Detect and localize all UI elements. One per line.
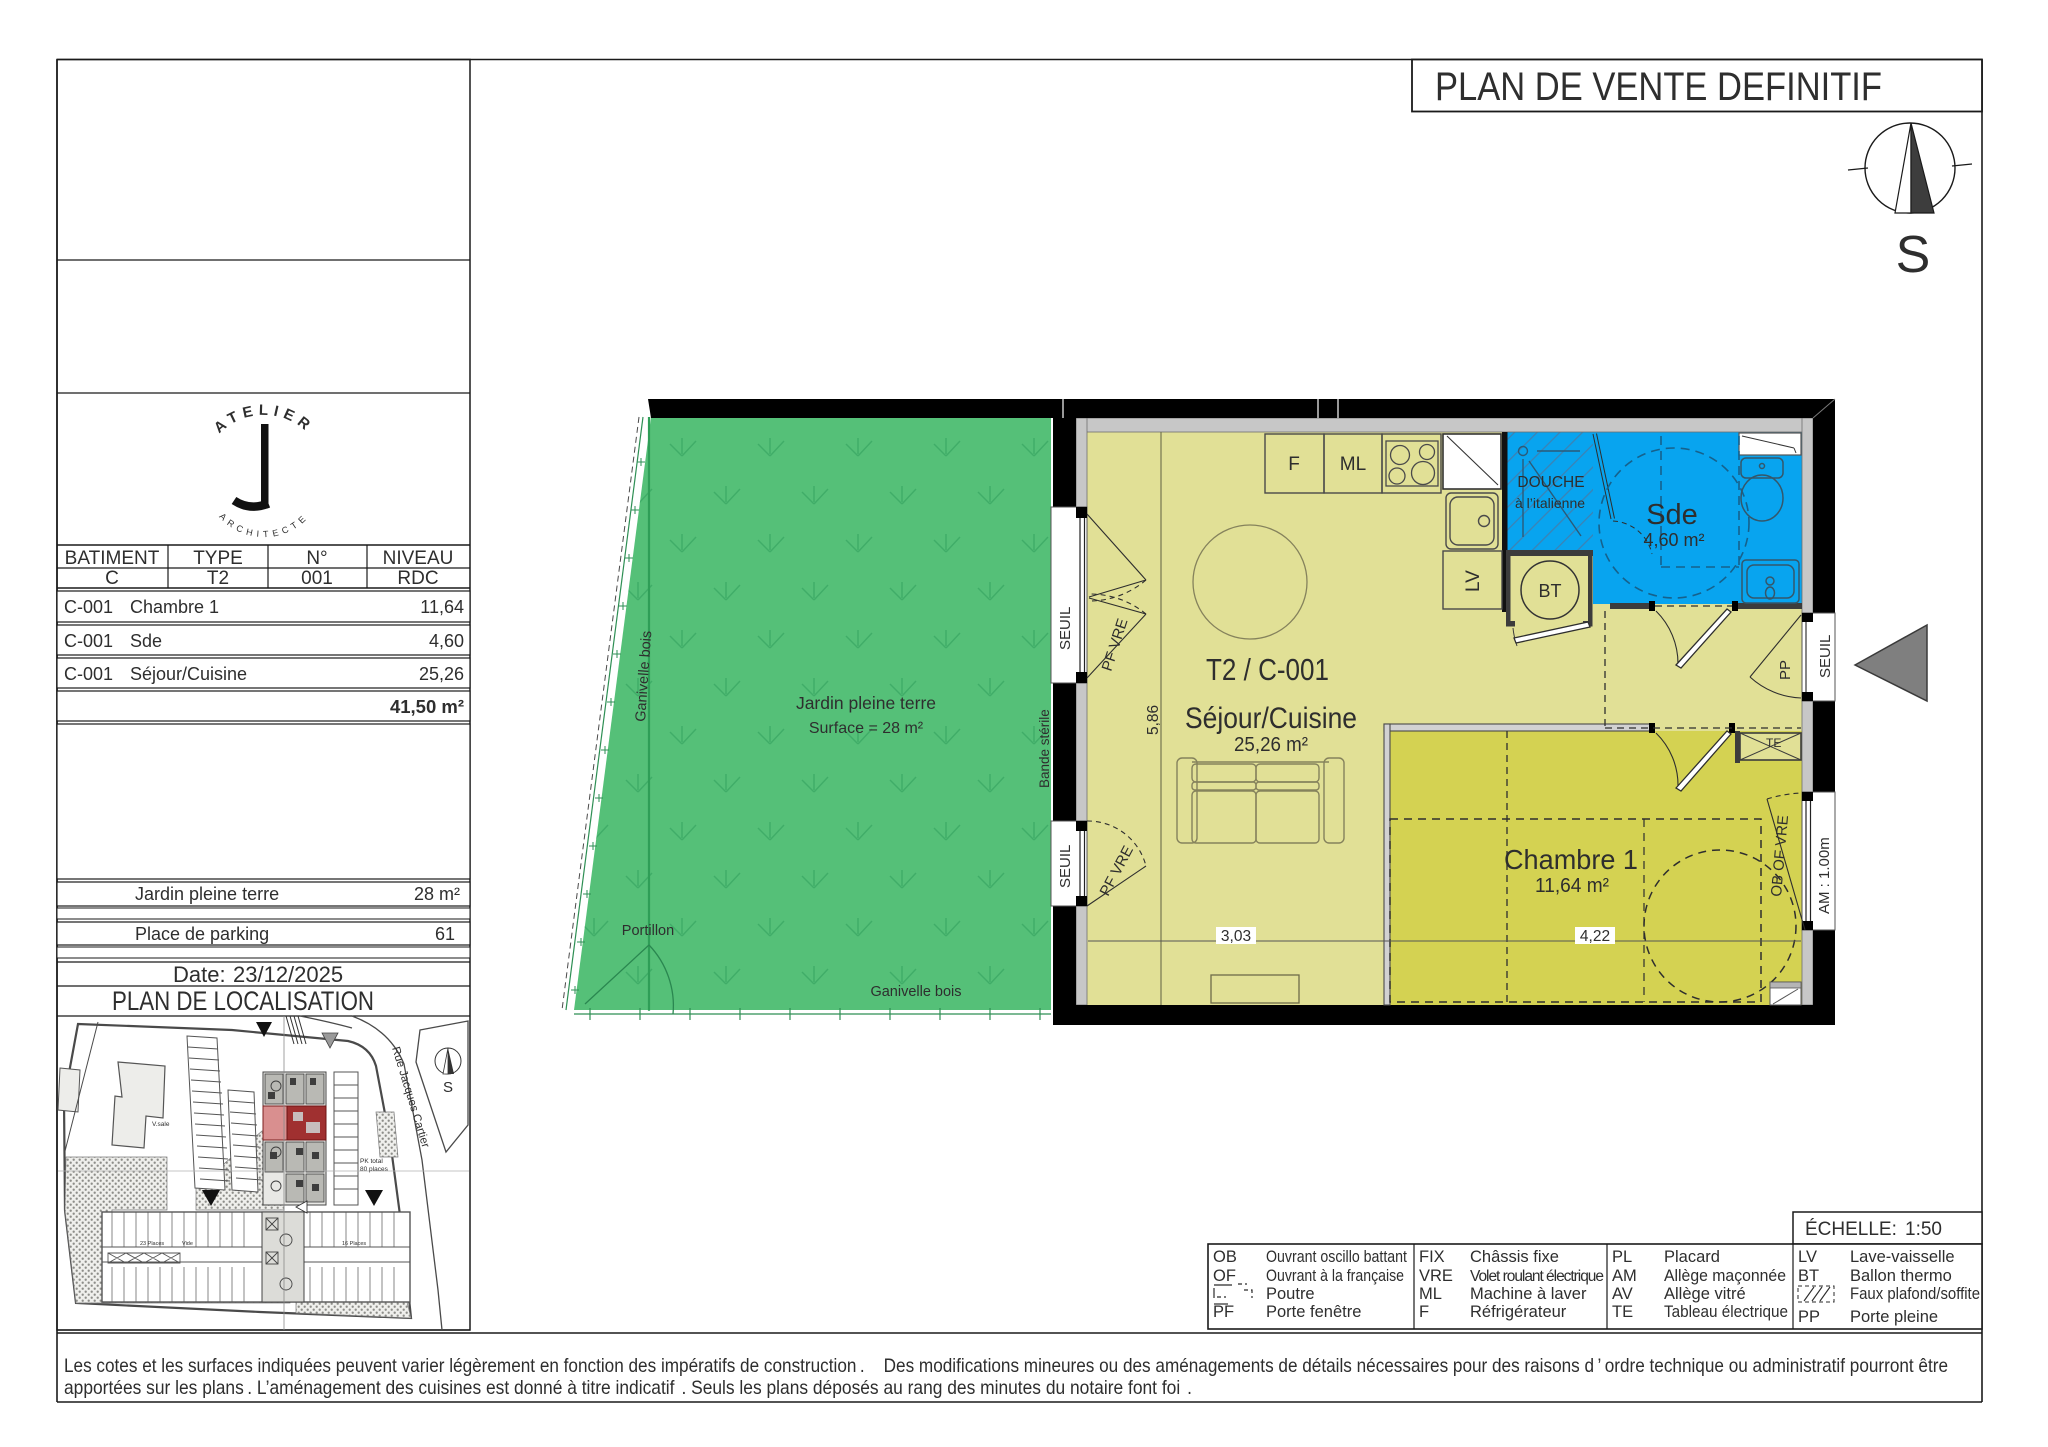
svg-text:Ganivelle bois: Ganivelle bois (870, 984, 961, 1000)
svg-text:N°: N° (306, 548, 327, 569)
svg-text:Faux plafond/soffite: Faux plafond/soffite (1850, 1285, 1980, 1303)
svg-text:Réfrigérateur: Réfrigérateur (1470, 1303, 1567, 1321)
svg-text:PK total: PK total (360, 1158, 383, 1165)
svg-text:4,22: 4,22 (1580, 928, 1610, 945)
svg-text:Place de parking: Place de parking (135, 924, 269, 944)
svg-text:BT: BT (1798, 1267, 1819, 1285)
svg-text:TE: TE (1612, 1303, 1633, 1321)
svg-text:Séjour/Cuisine: Séjour/Cuisine (130, 664, 247, 684)
svg-text:Poutre: Poutre (1266, 1285, 1315, 1303)
svg-text:4,60: 4,60 (429, 631, 464, 651)
svg-text:25,26: 25,26 (419, 664, 464, 684)
svg-text:VRE: VRE (1419, 1267, 1453, 1285)
svg-text:V.sale: V.sale (152, 1121, 170, 1128)
svg-text:5,86: 5,86 (1145, 705, 1162, 735)
svg-text:C-001: C-001 (64, 597, 113, 617)
svg-text:SEUIL: SEUIL (1057, 845, 1074, 888)
svg-text:S: S (443, 1079, 453, 1096)
svg-text:4,60 m²: 4,60 m² (1643, 530, 1704, 550)
svg-text:Les cotes et les surfaces indi: Les cotes et les surfaces indiquées peuv… (64, 1355, 1948, 1377)
svg-text:3,03: 3,03 (1221, 928, 1251, 945)
svg-text:Machine à laver: Machine à laver (1470, 1285, 1587, 1303)
svg-text:Bande stérile: Bande stérile (1037, 709, 1052, 788)
svg-text:OF: OF (1213, 1267, 1236, 1285)
svg-text:C-001: C-001 (64, 631, 113, 651)
svg-text:16 Places: 16 Places (342, 1241, 366, 1247)
svg-text:Porte fenêtre: Porte fenêtre (1266, 1303, 1361, 1321)
svg-text:SEUIL: SEUIL (1817, 635, 1834, 678)
svg-text:ML: ML (1419, 1285, 1442, 1303)
svg-text:PL: PL (1612, 1248, 1632, 1266)
svg-text:OB: OB (1213, 1248, 1237, 1266)
svg-text:11,64: 11,64 (420, 597, 464, 617)
svg-text:61: 61 (435, 924, 455, 944)
svg-text:Vide: Vide (182, 1241, 193, 1247)
svg-text:Chambre 1: Chambre 1 (130, 597, 219, 617)
svg-text:Placard: Placard (1664, 1248, 1720, 1266)
svg-text:Ouvrant à la française: Ouvrant à la française (1266, 1267, 1404, 1285)
svg-text:41,50 m²: 41,50 m² (390, 696, 464, 717)
svg-text:Volet roulant électrique: Volet roulant électrique (1470, 1268, 1604, 1285)
svg-text:S: S (1896, 226, 1931, 284)
svg-text:Séjour/Cuisine: Séjour/Cuisine (1185, 702, 1357, 735)
svg-text:Allège vitré: Allège vitré (1664, 1285, 1746, 1303)
svg-text:Jardin pleine terre: Jardin pleine terre (796, 693, 936, 713)
svg-text:25,26 m²: 25,26 m² (1234, 734, 1308, 756)
svg-text:F: F (1419, 1303, 1429, 1321)
svg-text:Lave-vaisselle: Lave-vaisselle (1850, 1248, 1955, 1266)
svg-text:80 places: 80 places (360, 1166, 389, 1173)
svg-text:AM : 1.00m: AM : 1.00m (1816, 837, 1833, 914)
svg-text:T2 / C-001: T2 / C-001 (1206, 652, 1329, 687)
svg-text:Surface = 28 m²: Surface = 28 m² (809, 720, 924, 737)
svg-text:Sde: Sde (130, 631, 162, 651)
svg-text:23 Places: 23 Places (140, 1241, 164, 1247)
svg-text:Portillon: Portillon (622, 923, 674, 939)
svg-text:PF: PF (1213, 1303, 1234, 1321)
svg-text:001: 001 (301, 568, 333, 589)
svg-text:LV: LV (1798, 1248, 1817, 1266)
svg-text:C-001: C-001 (64, 664, 113, 684)
svg-text:PP: PP (1777, 660, 1794, 680)
svg-text:TYPE: TYPE (193, 548, 243, 569)
svg-text:RDC: RDC (397, 568, 438, 589)
svg-text:23/12/2025: 23/12/2025 (233, 962, 343, 987)
svg-text:1:50: 1:50 (1905, 1219, 1942, 1240)
svg-text:apportées sur les plans . L’am: apportées sur les plans . L’aménagement … (64, 1377, 1192, 1399)
svg-text:Date:: Date: (173, 962, 226, 987)
svg-text:AM: AM (1612, 1267, 1637, 1285)
svg-text:Ouvrant oscillo battant: Ouvrant oscillo battant (1266, 1248, 1407, 1266)
svg-text:NIVEAU: NIVEAU (383, 548, 454, 569)
svg-text:Porte pleine: Porte pleine (1850, 1308, 1938, 1326)
svg-text:28 m²: 28 m² (414, 884, 460, 904)
svg-text:BATIMENT: BATIMENT (65, 548, 160, 569)
svg-text:T2: T2 (207, 568, 229, 589)
svg-text:FIX: FIX (1419, 1248, 1445, 1266)
svg-text:BT: BT (1538, 581, 1561, 601)
svg-text:F: F (1288, 454, 1300, 475)
svg-text:PLAN DE VENTE DEFINITIF: PLAN DE VENTE DEFINITIF (1435, 65, 1882, 109)
svg-text:ÉCHELLE:: ÉCHELLE: (1805, 1219, 1897, 1240)
svg-text:LV: LV (1463, 570, 1484, 592)
svg-text:11,64 m²: 11,64 m² (1535, 875, 1609, 897)
svg-text:SEUIL: SEUIL (1057, 607, 1074, 650)
svg-text:Châssis fixe: Châssis fixe (1470, 1248, 1559, 1266)
svg-text:C: C (105, 568, 119, 589)
svg-text:Jardin pleine terre: Jardin pleine terre (135, 884, 279, 904)
svg-text:ML: ML (1340, 454, 1366, 475)
svg-text:TE: TE (1766, 736, 1781, 750)
svg-text:Sde: Sde (1646, 499, 1698, 531)
svg-text:Chambre 1: Chambre 1 (1504, 844, 1638, 875)
svg-text:PP: PP (1798, 1308, 1820, 1326)
svg-text:Tableau électrique: Tableau électrique (1664, 1303, 1788, 1321)
svg-text:à l’italienne: à l’italienne (1515, 495, 1585, 511)
svg-text:Allège maçonnée: Allège maçonnée (1664, 1267, 1786, 1285)
svg-text:DOUCHE: DOUCHE (1517, 474, 1584, 491)
svg-text:AV: AV (1612, 1285, 1633, 1303)
svg-text:PLAN DE LOCALISATION: PLAN DE LOCALISATION (112, 986, 374, 1016)
svg-text:Ballon thermo: Ballon thermo (1850, 1267, 1952, 1285)
